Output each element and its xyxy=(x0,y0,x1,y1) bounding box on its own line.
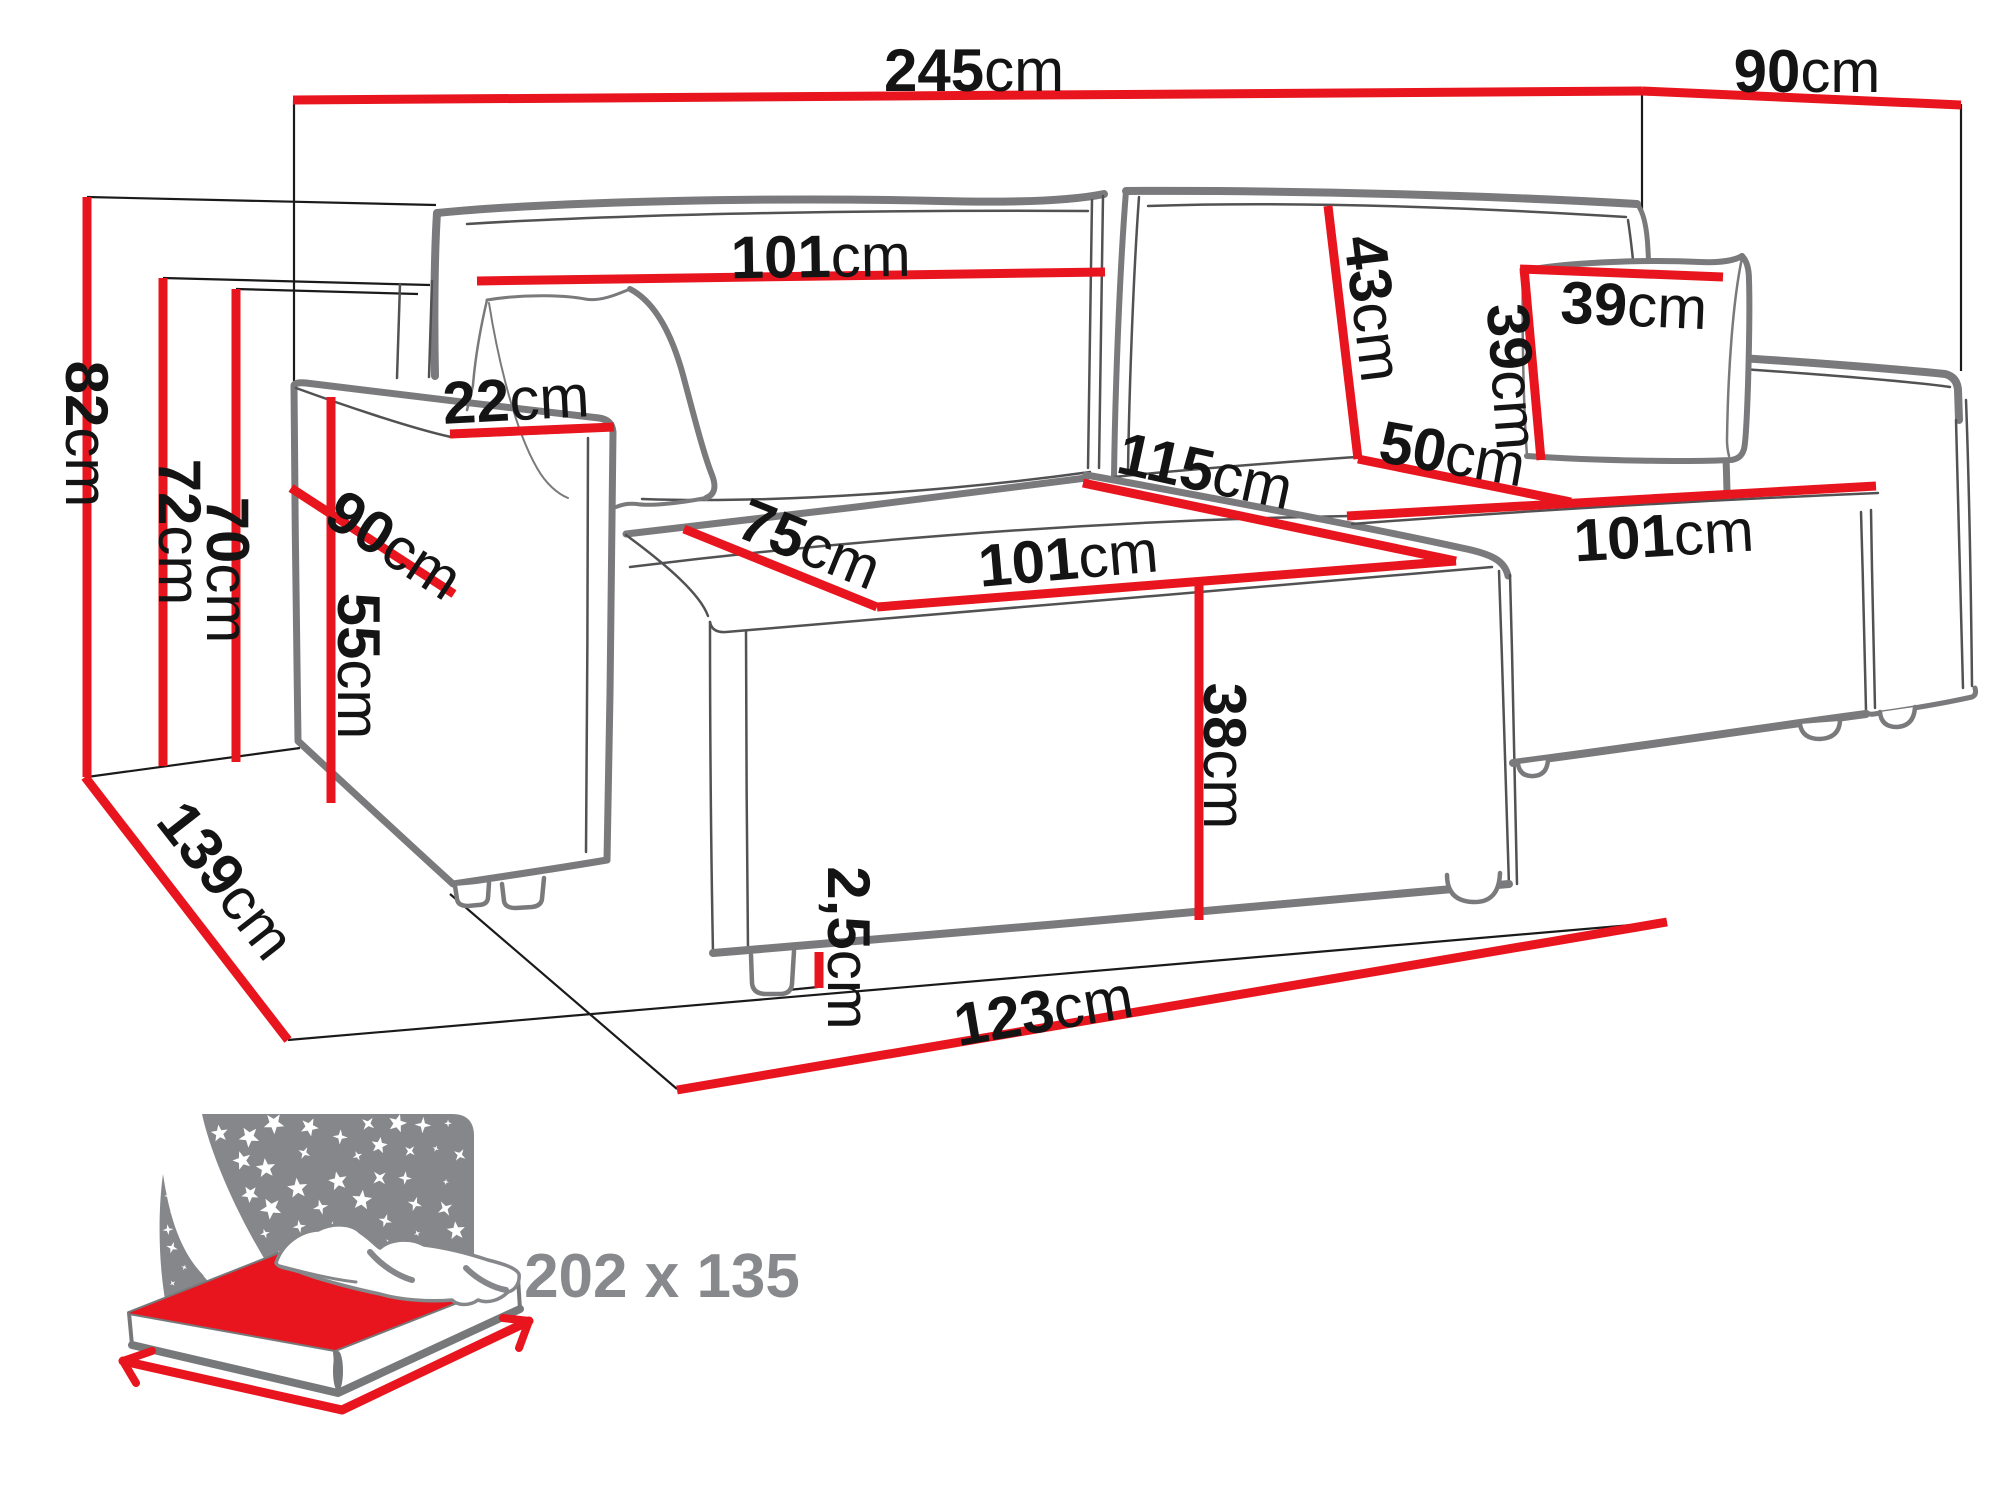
svg-text:39cm: 39cm xyxy=(1559,269,1709,342)
svg-text:202 x 135: 202 x 135 xyxy=(524,1242,800,1311)
svg-text:22cm: 22cm xyxy=(441,362,591,437)
svg-text:55cm: 55cm xyxy=(325,593,392,740)
svg-text:38cm: 38cm xyxy=(1191,683,1258,830)
svg-text:101cm: 101cm xyxy=(1572,497,1756,575)
svg-text:39cm: 39cm xyxy=(1474,301,1551,452)
svg-text:70cm: 70cm xyxy=(194,497,261,644)
svg-text:245cm: 245cm xyxy=(884,37,1064,104)
svg-text:2,5cm: 2,5cm xyxy=(815,866,882,1029)
svg-text:90cm: 90cm xyxy=(1734,38,1881,105)
svg-text:82cm: 82cm xyxy=(53,361,120,508)
svg-text:101cm: 101cm xyxy=(730,222,911,292)
